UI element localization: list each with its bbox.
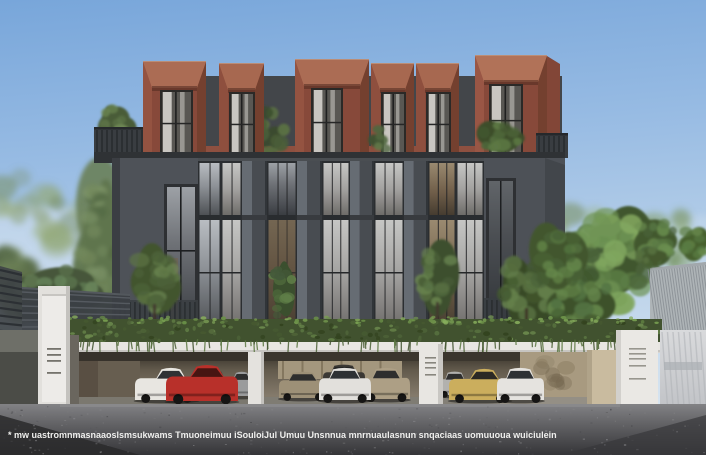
svg-text:* mw uastromnmasnaaoslsmsukwam: * mw uastromnmasnaaoslsmsukwams Tmuoneim…: [8, 430, 557, 440]
